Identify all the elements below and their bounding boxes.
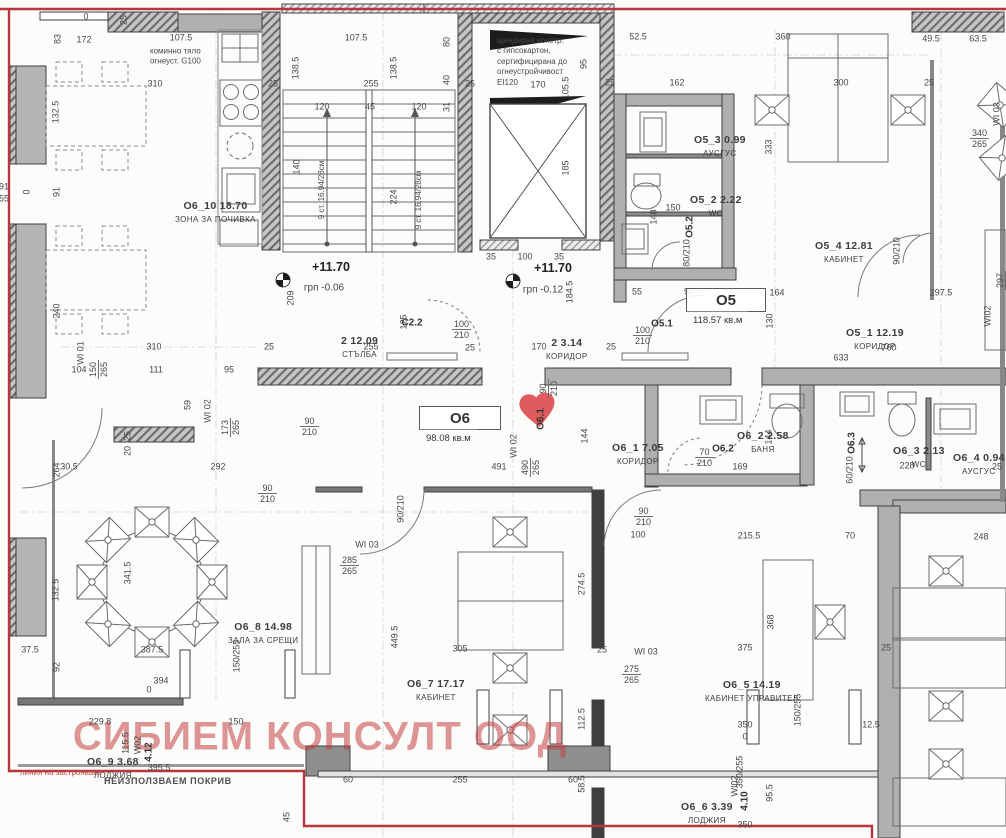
dimension-label-107: 387.5 [141, 646, 164, 655]
dimension-label-102: 70 [845, 532, 855, 541]
dimension-label-28: 31 [443, 102, 452, 112]
dimension-label-64: 25 [606, 343, 616, 352]
door-label-4.12: 4.12 [144, 742, 155, 761]
dimension-label-121: 350 [737, 721, 752, 730]
dimension-label-91: 30.5 [60, 463, 78, 472]
dimension-label-80: WI 02 [510, 434, 519, 458]
dimension-label-101: 215.5 [738, 532, 761, 541]
dimension-label-135: WI02 [731, 775, 740, 796]
level-label-1: +11.70 [534, 261, 572, 275]
dimension-label-113: 305 [452, 645, 467, 654]
dimension-label-16: 255 [363, 80, 378, 89]
dimension-label-0: 0 [83, 13, 88, 22]
dimension-label-43: 90/210 [893, 237, 902, 265]
dimension-label-34: 185 [562, 160, 571, 175]
dimension-label-24: 25 [924, 79, 934, 88]
dimension-label-35: 91 [53, 187, 62, 197]
dimension-label-136: 95.5 [766, 784, 775, 802]
dimension-label-42: 80/210 [683, 239, 692, 267]
dimension-label-25: 120 [314, 103, 329, 112]
dimension-label-18: 25 [465, 80, 475, 89]
dimension-label-97: WI 03 [355, 541, 379, 550]
dimension-label-123: 12.5 [862, 721, 880, 730]
floor-plan: СИБИЕМ КОНСУЛТ ООД 02583172107.5107.552.… [0, 0, 1006, 838]
dimension-label-103: 248 [973, 533, 988, 542]
dimension-label-95: 132.5 [52, 579, 61, 602]
dimension-label-110: 394 [153, 677, 168, 686]
dimension-label-115: 375 [737, 644, 752, 653]
dimension-label-7: 360 [775, 33, 790, 42]
dimension-label-92: 292 [210, 463, 225, 472]
dimension-label-29: 132.5 [52, 101, 61, 124]
dimension-label-62: 25 [465, 344, 475, 353]
dimension-label-84: 60/210 [846, 456, 855, 484]
dimension-label-98: 90/210 [397, 495, 406, 523]
dimension-label-118: WI 03 [634, 648, 658, 657]
dimension-label-49: 184.5 [566, 281, 575, 304]
dimension-label-26: 45 [365, 103, 375, 112]
unit-box-О6: О698.08 кв.м [419, 406, 501, 430]
dimension-label-94: 341.5 [124, 562, 133, 585]
dimension-label-63: 170 [531, 343, 546, 352]
dimension-label-50: 55 [632, 288, 642, 297]
dimension-label-54: 130 [766, 313, 775, 328]
dimension-label-15: 25 [268, 80, 278, 89]
dimension-label-8: 49.5 [922, 35, 940, 44]
level-sub-label-0: грп -0.06 [304, 283, 344, 294]
dimension-label-131: 255 [452, 776, 467, 785]
dimension-label-78: 20 [124, 446, 133, 456]
door-label-О6.3: О6.3 [847, 432, 858, 454]
dimension-label-126: 115.5 [122, 732, 131, 754]
door-label-О6.1: О6.1 [536, 408, 547, 430]
dimension-label-88: 491 [491, 463, 506, 472]
dimension-label-124: 229.8 [89, 718, 112, 727]
dimension-label-31: WI 03 [993, 102, 1002, 126]
dimension-label-13: 95 [580, 59, 589, 69]
dimension-label-10: 138.5 [292, 57, 301, 80]
dimension-label-37: 91 [0, 183, 9, 192]
labels-layer: СИБИЕМ КОНСУЛТ ООД 02583172107.5107.552.… [0, 0, 1006, 838]
dimension-label-137: 350 [737, 821, 752, 830]
note-3: 9 ст. 16.94/28см [414, 171, 424, 230]
dimension-label-122: 0 [742, 733, 747, 742]
dimension-label-108: 92 [53, 662, 62, 672]
dimension-label-33: 140 [293, 159, 302, 174]
dimension-label-71: WI 01 [77, 341, 86, 365]
dimension-label-68: 104 [71, 366, 86, 375]
dimension-label-21: 25 [605, 79, 615, 88]
door-label-О6.2: О6.2 [712, 444, 734, 455]
dimension-label-22: 162 [669, 79, 684, 88]
dimension-label-105: 368 [767, 614, 776, 629]
dimension-label-27: 120 [411, 103, 426, 112]
dimension-label-59: 25 [264, 343, 274, 352]
dimension-label-1: 25 [120, 15, 129, 25]
dimension-label-112: 449.5 [391, 626, 400, 649]
note-0: коминно тяло огнеуст. G100 [150, 47, 201, 68]
dimension-label-133: 58.5 [578, 775, 587, 793]
dimension-label-23: 300 [833, 79, 848, 88]
dimension-label-74: WI 02 [204, 399, 213, 423]
door-label-4.10: 4.10 [740, 791, 751, 810]
dimension-label-48: 209 [287, 290, 296, 305]
dimension-label-128: 395.5 [148, 764, 171, 773]
dimension-label-3: 172 [76, 36, 91, 45]
dimension-label-17: 40 [443, 75, 452, 85]
dimension-label-114: 25 [597, 646, 607, 655]
dimension-label-6: 52.5 [629, 33, 647, 42]
dimension-label-130: 60 [343, 776, 353, 785]
dimension-label-129: 45 [283, 812, 292, 822]
dimension-label-52: 164 [769, 289, 784, 298]
door-label-О5.2: О5.2 [685, 216, 696, 238]
door-label-О5.1: О5.1 [651, 319, 673, 330]
dimension-label-44: 240 [53, 303, 62, 318]
dimension-label-106: 37.5 [21, 646, 39, 655]
dimension-label-41: 148 [650, 209, 659, 224]
dimension-label-39: 224 [390, 189, 399, 204]
dimension-label-46: 100 [517, 253, 532, 262]
dimension-label-40: 150 [665, 204, 680, 213]
dimension-label-85: 169 [732, 463, 747, 472]
dimension-label-125: 150 [228, 718, 243, 727]
dimension-label-119: 112.5 [578, 708, 587, 730]
dimension-label-104: 274.5 [578, 573, 587, 596]
dimension-label-111: 0 [146, 686, 151, 695]
dimension-label-77: 25 [124, 431, 133, 441]
note-5: НЕИЗПОЛЗВАЕМ ПОКРИВ [104, 776, 232, 788]
dimension-label-2: 83 [54, 34, 63, 44]
dimension-label-67: 633 [833, 354, 848, 363]
dimension-label-56: WI02 [984, 305, 993, 326]
note-4: линия на застрояване [20, 768, 102, 778]
dimension-label-32: 333 [765, 139, 774, 154]
dimension-label-38: 55 [0, 195, 9, 204]
dimension-label-116: 25 [881, 644, 891, 653]
dimension-label-70: 95 [224, 366, 234, 375]
unit-box-О5: О5118.57 кв.м [686, 288, 766, 312]
level-label-0: +11.70 [312, 260, 350, 274]
dimension-label-45: 35 [486, 253, 496, 262]
dimension-label-4: 107.5 [170, 34, 193, 43]
note-2: 9 ст. 16.94/28см [317, 161, 327, 220]
dimension-label-69: 111 [149, 366, 163, 375]
dimension-label-11: 138.5 [390, 57, 399, 80]
dimension-label-100: 100 [630, 531, 645, 540]
door-label-С2.2: С2.2 [401, 318, 422, 329]
dimension-label-12: 80 [443, 37, 452, 47]
dimension-label-9: 63.5 [969, 35, 987, 44]
dimension-label-81: 144 [581, 428, 590, 443]
dimension-label-73: 59 [184, 400, 193, 410]
level-sub-label-1: грп -0.12 [523, 285, 563, 296]
dimension-label-36: 0 [23, 189, 32, 194]
dimension-label-65: 310 [146, 343, 161, 352]
dimension-label-5: 107.5 [345, 34, 368, 43]
dimension-label-14: 310 [147, 80, 162, 89]
dimension-label-53: 297.5 [930, 289, 953, 298]
note-1: щендерна констр. с гипсокартон, сертифиц… [497, 36, 567, 88]
